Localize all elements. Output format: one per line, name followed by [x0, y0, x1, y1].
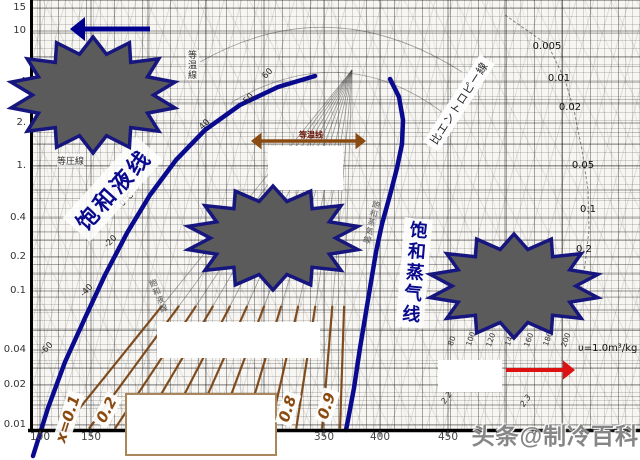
arrow-head: [356, 133, 367, 150]
arrow-head: [563, 360, 575, 379]
watermark: 头条@制冷百科: [472, 417, 639, 451]
arrow-head: [70, 17, 85, 41]
arrow-head: [251, 133, 262, 150]
censor-starburst: [430, 234, 598, 338]
censor-starburst: [188, 186, 358, 290]
annotation-overlay: [0, 0, 640, 460]
ph-diagram: 151042.1.0.40.20.10.040.020.011001503504…: [0, 0, 640, 460]
censor-starburst: [11, 37, 175, 153]
isotherm-arrow-caption: 等温线: [299, 130, 323, 141]
